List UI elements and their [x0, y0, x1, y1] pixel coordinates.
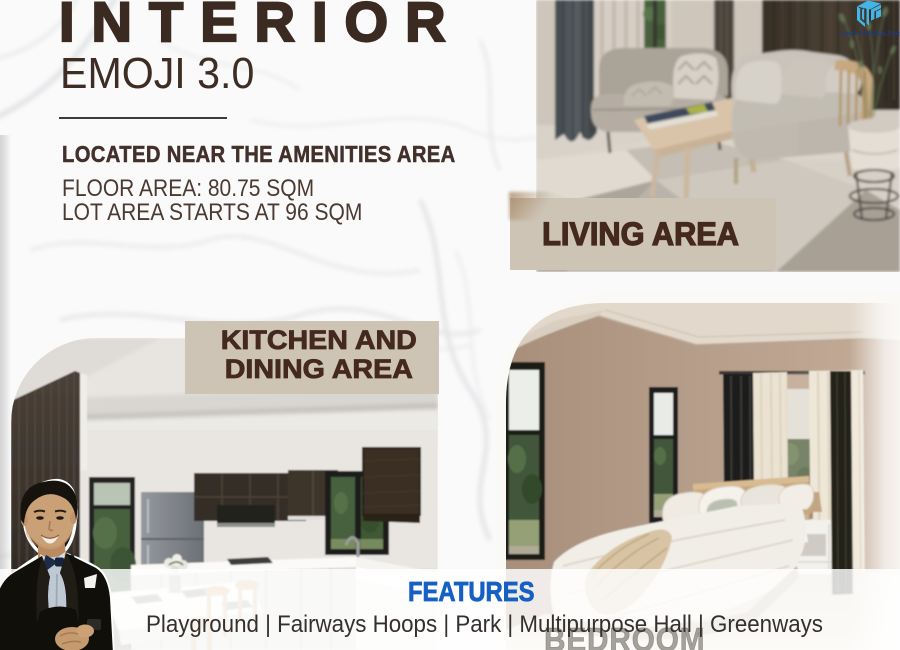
svg-text:YOUR TOP REALTOR: YOUR TOP REALTOR	[840, 32, 900, 38]
